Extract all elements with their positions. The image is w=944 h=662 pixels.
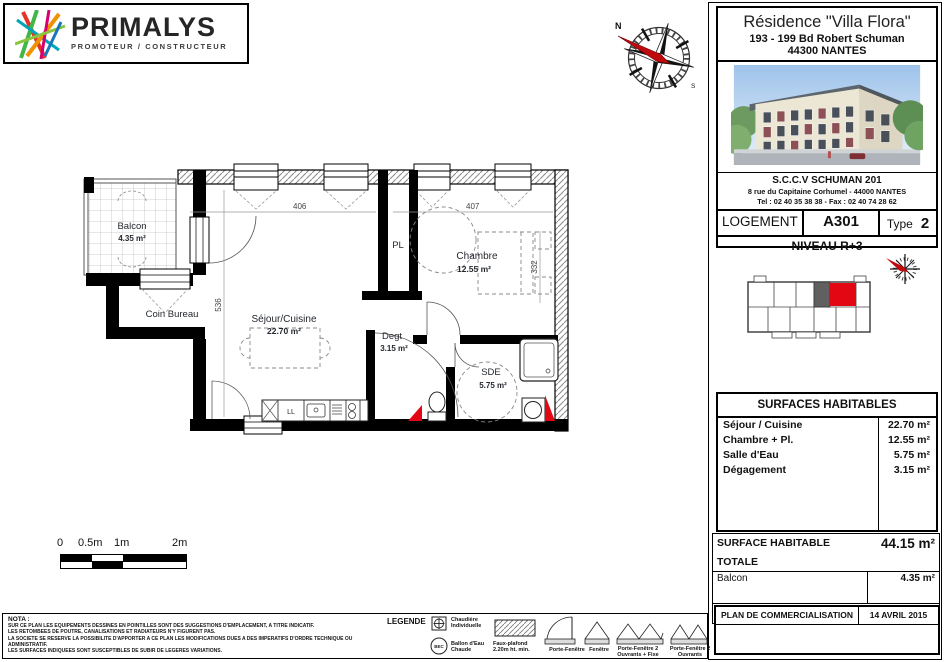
room-sejour-area: 22.70 m²: [267, 326, 301, 336]
dim-536: 536: [214, 298, 223, 312]
door-window-2-fixed-icon: [617, 624, 663, 644]
footer-box: PLAN DE COMMERCIALISATION 14 AVRIL 2015: [714, 605, 940, 655]
developer-address: 8 rue du Capitaine Corhumel - 44000 NANT…: [718, 187, 936, 196]
scale-bar: 0 0.5m 1m 2m: [58, 537, 198, 577]
total-label: SURFACE HABITABLE TOTALE: [713, 534, 867, 572]
compass-rose: N S: [607, 6, 707, 106]
scale-0: 0: [57, 537, 63, 549]
bureau-window: [140, 269, 190, 313]
unit-type: Type2: [880, 215, 936, 232]
legend-dw2f-label: Porte-Fenêtre 2 Ouvrants + Fixe: [609, 646, 667, 658]
logo-tagline: PROMOTEUR / CONSTRUCTEUR: [71, 42, 227, 51]
radiator-red: [545, 395, 555, 421]
unit-row: LOGEMENT A301 Type2: [718, 211, 936, 237]
balcony-label: Balcon: [713, 572, 867, 603]
radiator-red: [408, 405, 422, 421]
building-photo: [731, 65, 923, 170]
boiler-icon: [432, 617, 446, 630]
table-row: Salle d'Eau 5.75 m²: [718, 448, 936, 463]
room-pl: PL: [392, 240, 404, 251]
developer-phone: Tel : 02 40 35 38 38 - Fax : 02 40 74 28…: [718, 197, 936, 206]
room-balcon-area: 4.35 m²: [118, 234, 146, 243]
legend-title: LEGENDE: [387, 617, 426, 626]
false-ceiling-icon: [495, 620, 535, 636]
residence-address2: 44300 NANTES: [718, 45, 936, 62]
plan-type-label: PLAN DE COMMERCIALISATION: [716, 607, 859, 624]
nota-legend-strip: NOTA : SUR CE PLAN LES EQUIPEMENTS DESSI…: [2, 613, 708, 659]
compass-s-label: S: [691, 83, 696, 90]
svg-text:BEC: BEC: [434, 644, 444, 649]
project-info-box: Résidence "Villa Flora" 193 - 199 Bd Rob…: [716, 6, 938, 248]
surface-value: 22.70 m²: [878, 418, 936, 433]
nota-title: NOTA :: [8, 616, 388, 623]
interior-doors: [375, 302, 479, 417]
surface-label: Séjour / Cuisine: [718, 418, 878, 433]
primalys-logo-icon: [15, 10, 67, 60]
surface-value: 12.55 m²: [878, 433, 936, 448]
plan-date: 14 AVRIL 2015: [859, 607, 938, 624]
plan-sheet: PRIMALYS PROMOTEUR / CONSTRUCTEUR N S: [0, 0, 944, 662]
door-window-2-icon: [671, 625, 707, 644]
total-surface-row: SURFACE HABITABLE TOTALE 44.15 m²: [712, 533, 940, 573]
appliance-ll: LL: [287, 409, 295, 416]
key-plan-compass: [886, 254, 920, 284]
room-chambre-area: 12.55 m²: [457, 264, 491, 274]
surface-value: 5.75 m²: [878, 448, 936, 463]
nota-block: NOTA : SUR CE PLAN LES EQUIPEMENTS DESSI…: [8, 616, 388, 654]
room-sejour: Séjour/Cuisine: [251, 314, 316, 325]
legend-bec-label: Ballon d'Eau Chaude: [451, 641, 495, 653]
key-plan: [738, 248, 928, 343]
compass-n-label: N: [615, 21, 622, 31]
total-value: 44.15 m²: [867, 534, 939, 572]
key-plan-highlighted-unit: [830, 283, 856, 306]
floor-plan: 406 407 536 332: [78, 155, 583, 455]
scale-05: 0.5m: [78, 537, 102, 549]
logement-label: LOGEMENT: [718, 211, 804, 235]
surface-label: Salle d'Eau: [718, 448, 878, 463]
surfaces-table: SURFACES HABITABLES Séjour / Cuisine 22.…: [716, 392, 938, 532]
nota-line: LES SURFACES INDIQUEES SONT SUSCEPTIBLES…: [8, 648, 388, 654]
kitchen-counter: [262, 400, 368, 421]
legend-boiler-label: Chaudière Individuelle: [451, 617, 495, 629]
table-row: Séjour / Cuisine 22.70 m²: [718, 418, 936, 433]
water-heater-icon: BEC: [431, 638, 447, 654]
room-degt: Degt: [382, 331, 402, 342]
room-sde: SDE: [481, 367, 501, 378]
logo-box: PRIMALYS PROMOTEUR / CONSTRUCTEUR: [3, 3, 249, 64]
developer-block: S.C.C.V SCHUMAN 201 8 rue du Capitaine C…: [718, 172, 936, 211]
scale-2: 2m: [172, 537, 187, 549]
residence-address1: 193 - 199 Bd Robert Schuman: [718, 33, 936, 45]
surface-label: Dégagement: [718, 463, 878, 478]
type-value: 2: [921, 215, 929, 232]
surface-value: 3.15 m²: [878, 463, 936, 478]
door-window-icon: [545, 617, 575, 644]
table-row: Dégagement 3.15 m²: [718, 463, 936, 478]
type-label: Type: [887, 217, 913, 231]
dim-332: 332: [530, 260, 539, 274]
surface-label: Chambre + Pl.: [718, 433, 878, 448]
logo-name: PRIMALYS: [71, 13, 227, 41]
surfaces-title: SURFACES HABITABLES: [718, 394, 936, 418]
room-chambre: Chambre: [456, 251, 498, 262]
legend-ceiling-label: Faux-plafond 2.20m ht. min.: [493, 641, 539, 653]
room-balcon: Balcon: [117, 221, 146, 232]
room-sde-area: 5.75 m²: [479, 381, 507, 390]
table-row: Chambre + Pl. 12.55 m²: [718, 433, 936, 448]
nota-line: LA SOCIETE SE RESERVE LA POSSIBILITE D'A…: [8, 636, 388, 649]
developer-name: S.C.C.V SCHUMAN 201: [718, 175, 936, 186]
legend-dw2-label: Porte-Fenêtre 2 Ouvrants: [667, 646, 713, 658]
window-icon: [585, 622, 609, 644]
interior-walls: [362, 170, 558, 421]
room-coin-bureau: Coin Bureau: [146, 309, 199, 320]
balcony-value: 4.35 m²: [867, 572, 939, 603]
dim-407: 407: [466, 202, 480, 211]
residence-title: Résidence "Villa Flora": [718, 13, 936, 32]
dim-406: 406: [293, 202, 307, 211]
balcony-door: [190, 216, 256, 263]
scale-bar-row-bottom: [60, 561, 187, 569]
scale-1: 1m: [114, 537, 129, 549]
unit-number: A301: [804, 211, 880, 235]
room-degt-area: 3.15 m²: [380, 344, 408, 353]
balcony-row: Balcon 4.35 m²: [712, 571, 940, 604]
